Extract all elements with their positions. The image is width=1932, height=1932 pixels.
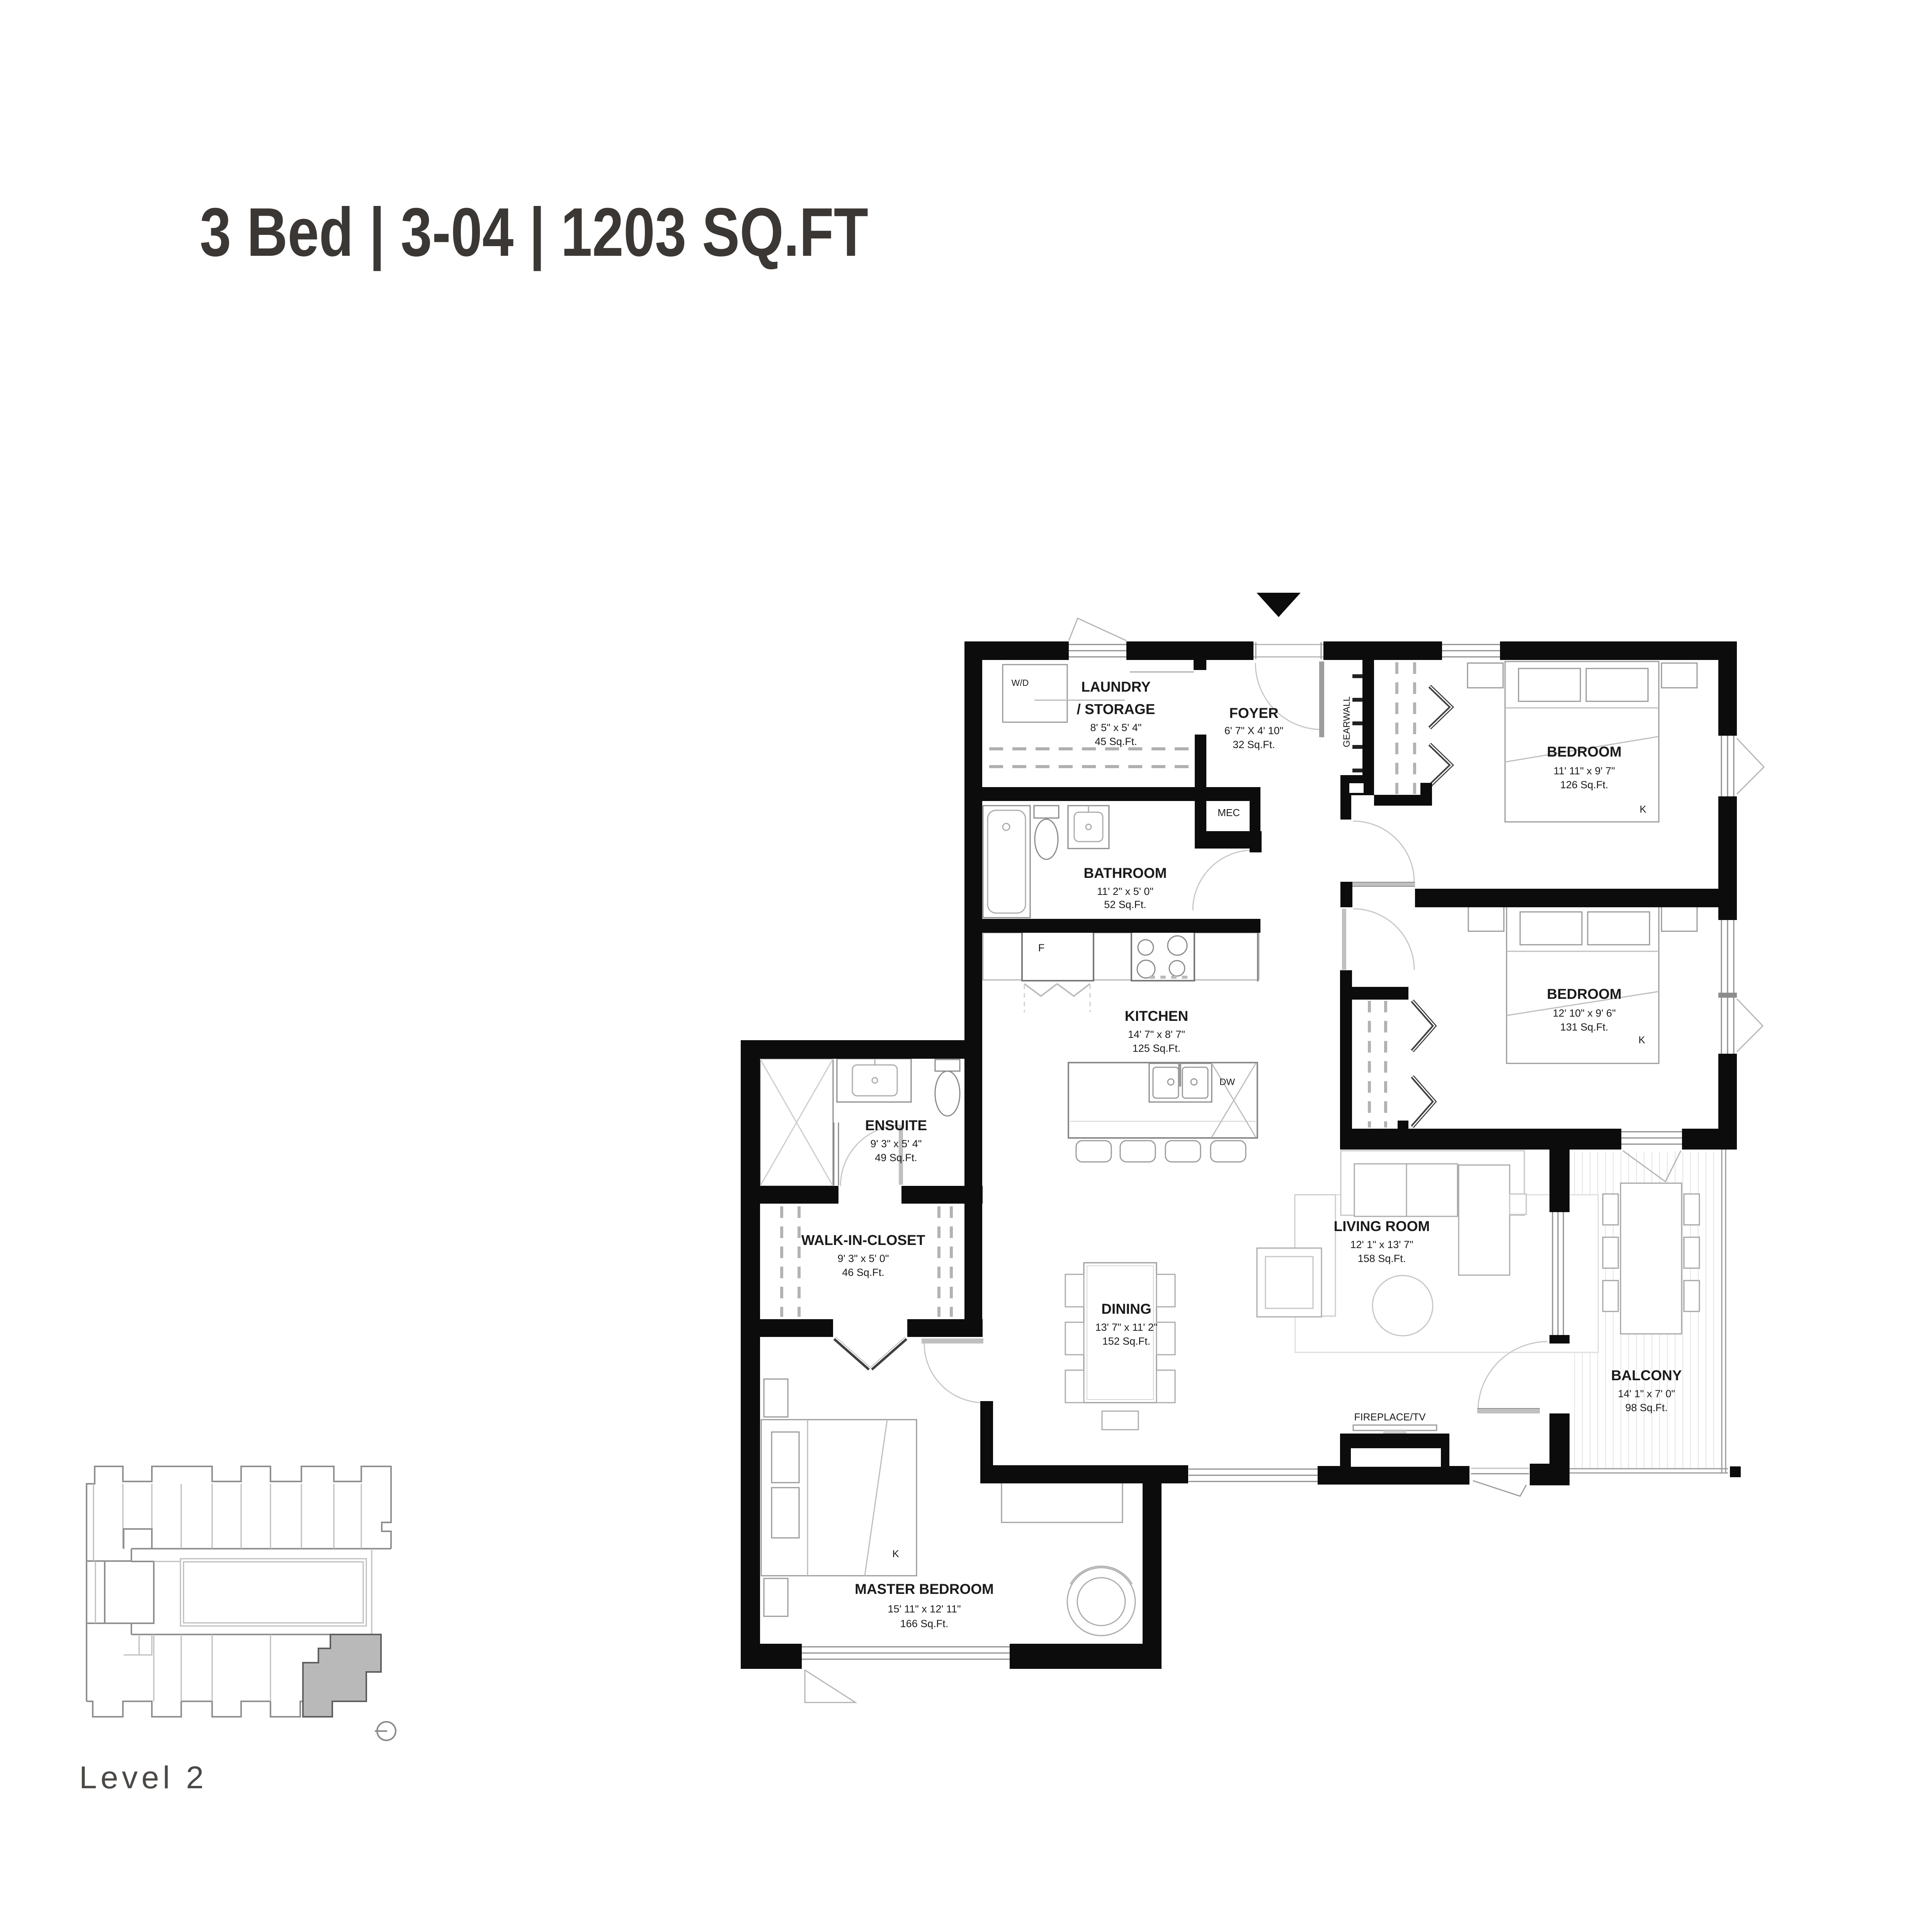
svg-text:KITCHEN: KITCHEN [1125, 1008, 1188, 1024]
svg-text:DINING: DINING [1101, 1301, 1151, 1317]
svg-text:13' 7" x 11' 2": 13' 7" x 11' 2" [1095, 1321, 1157, 1333]
svg-text:BEDROOM: BEDROOM [1547, 986, 1621, 1002]
svg-text:DW: DW [1219, 1077, 1235, 1087]
svg-text:ENSUITE: ENSUITE [865, 1117, 927, 1133]
svg-text:98 Sq.Ft.: 98 Sq.Ft. [1625, 1402, 1668, 1413]
svg-text:/ STORAGE: / STORAGE [1077, 701, 1155, 717]
svg-text:WALK-IN-CLOSET: WALK-IN-CLOSET [801, 1232, 925, 1248]
svg-text:BEDROOM: BEDROOM [1547, 744, 1621, 760]
svg-text:14' 1" x 7' 0": 14' 1" x 7' 0" [1618, 1388, 1675, 1400]
svg-text:9' 3" x 5' 0": 9' 3" x 5' 0" [837, 1253, 889, 1264]
svg-text:FOYER: FOYER [1229, 705, 1278, 721]
svg-text:K: K [1638, 1034, 1645, 1046]
svg-text:125 Sq.Ft.: 125 Sq.Ft. [1133, 1043, 1181, 1054]
svg-text:9' 3" x 5' 4": 9' 3" x 5' 4" [870, 1138, 922, 1150]
svg-text:3 Bed | 3-04 | 1203 SQ.FT: 3 Bed | 3-04 | 1203 SQ.FT [200, 194, 868, 271]
svg-text:W/D: W/D [1012, 678, 1029, 688]
svg-text:166 Sq.Ft.: 166 Sq.Ft. [900, 1618, 949, 1629]
svg-text:8' 5" x 5' 4": 8' 5" x 5' 4" [1090, 722, 1141, 733]
svg-text:FIREPLACE/TV: FIREPLACE/TV [1354, 1411, 1426, 1423]
svg-text:12' 10" x 9' 6": 12' 10" x 9' 6" [1553, 1007, 1616, 1019]
svg-text:52 Sq.Ft.: 52 Sq.Ft. [1104, 899, 1146, 910]
svg-text:F: F [1038, 942, 1045, 954]
svg-text:14' 7" x 8' 7": 14' 7" x 8' 7" [1128, 1029, 1185, 1040]
svg-text:46 Sq.Ft.: 46 Sq.Ft. [842, 1267, 884, 1278]
svg-text:131 Sq.Ft.: 131 Sq.Ft. [1560, 1021, 1609, 1033]
svg-text:LIVING ROOM: LIVING ROOM [1334, 1218, 1430, 1234]
svg-text:15' 11" x 12' 11": 15' 11" x 12' 11" [888, 1603, 961, 1615]
svg-text:11' 11" x 9' 7": 11' 11" x 9' 7" [1553, 765, 1615, 777]
svg-text:MASTER BEDROOM: MASTER BEDROOM [855, 1581, 994, 1597]
svg-text:6' 7" X 4' 10": 6' 7" X 4' 10" [1225, 725, 1284, 736]
svg-text:49 Sq.Ft.: 49 Sq.Ft. [875, 1152, 917, 1163]
svg-text:12' 1" x 13' 7": 12' 1" x 13' 7" [1350, 1239, 1413, 1250]
svg-text:152 Sq.Ft.: 152 Sq.Ft. [1102, 1335, 1151, 1347]
svg-text:45 Sq.Ft.: 45 Sq.Ft. [1095, 736, 1137, 747]
svg-text:K: K [892, 1548, 899, 1560]
svg-text:BATHROOM: BATHROOM [1083, 865, 1167, 881]
svg-text:32 Sq.Ft.: 32 Sq.Ft. [1233, 739, 1275, 750]
svg-text:BALCONY: BALCONY [1611, 1367, 1682, 1383]
svg-text:11' 2" x 5' 0": 11' 2" x 5' 0" [1097, 886, 1153, 897]
svg-text:K: K [1639, 803, 1646, 815]
svg-text:LAUNDRY: LAUNDRY [1081, 679, 1151, 695]
svg-text:126 Sq.Ft.: 126 Sq.Ft. [1560, 779, 1609, 791]
svg-text:GEARWALL: GEARWALL [1342, 696, 1352, 747]
svg-text:158 Sq.Ft.: 158 Sq.Ft. [1358, 1253, 1406, 1264]
svg-text:MEC: MEC [1218, 807, 1240, 818]
